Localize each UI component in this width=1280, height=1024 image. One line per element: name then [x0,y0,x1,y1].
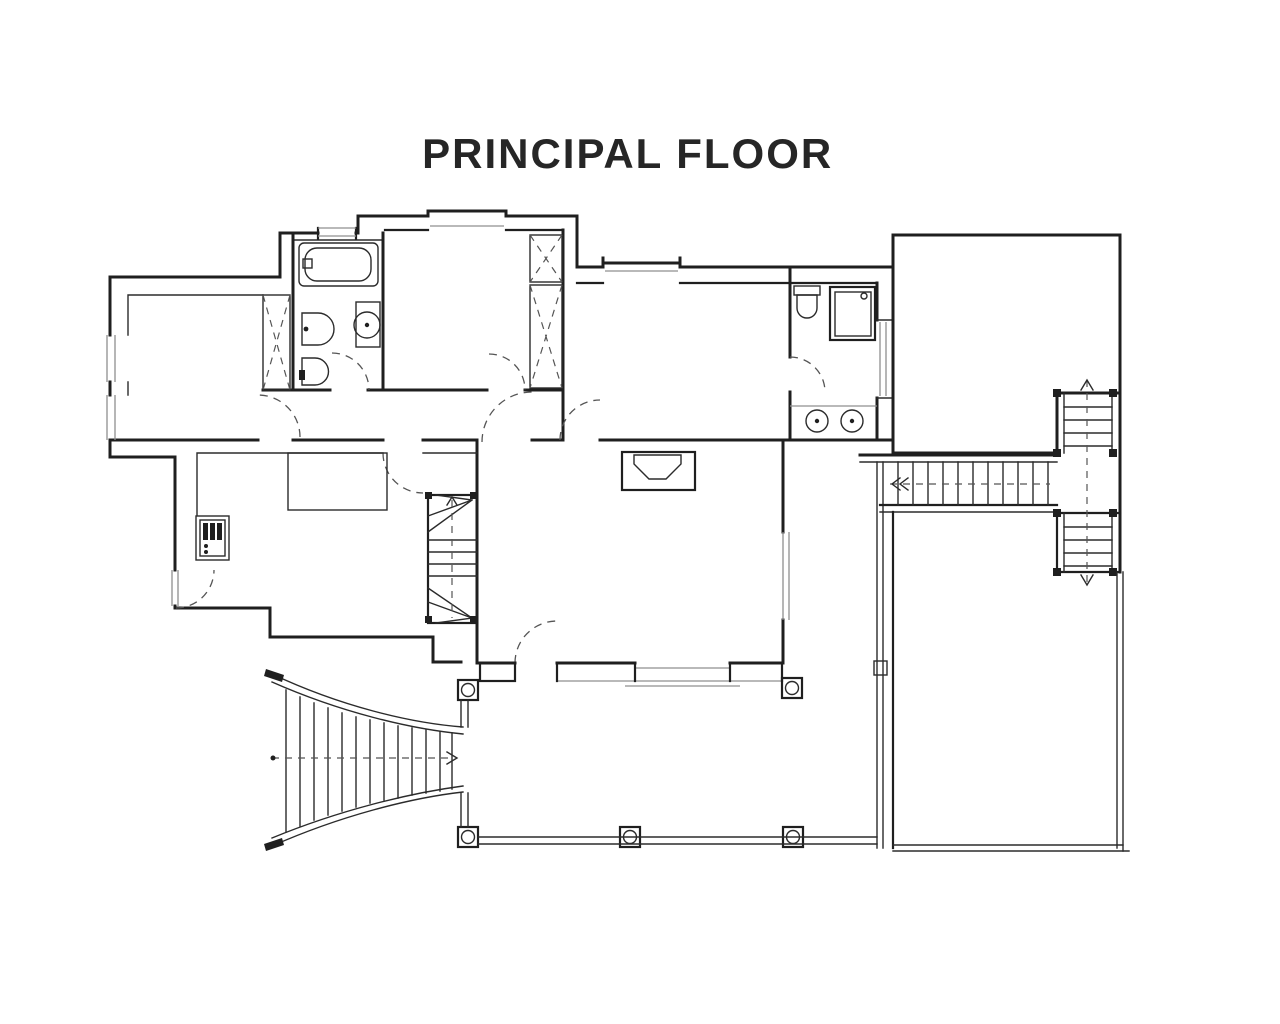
kitchen-counter [288,453,387,510]
living-room-windows [477,663,783,686]
porch [458,462,887,848]
wc-icon [794,286,820,295]
interior-walls [110,230,1120,663]
floor-plan-drawing [0,0,1280,1024]
terrace [893,512,1129,851]
door-swings [176,353,825,663]
winder-staircase [425,492,477,623]
toilet-icon [302,358,329,385]
bathroom-fixtures-right [790,286,877,432]
porch-railing [461,462,887,848]
landing-staircases [1053,380,1120,585]
kitchen-fixtures [196,453,387,560]
windows [107,226,886,620]
fireplace [622,452,695,490]
exterior-walls [110,211,1120,662]
bathroom-fixtures-left [299,243,380,385]
shower-icon [830,287,875,340]
fan-staircase [264,669,463,851]
page: { "page": { "background": "#ffffff" }, "… [0,0,1280,1024]
porch-column-icon [458,678,803,847]
side-staircase [860,455,1057,512]
